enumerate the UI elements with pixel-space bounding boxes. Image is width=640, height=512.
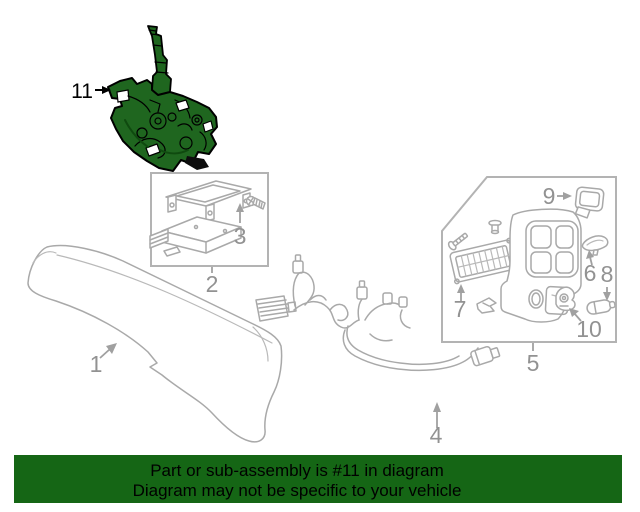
callout-8-label: 8 — [601, 261, 614, 287]
banner-line1: Part or sub-assembly is #11 in diagram — [150, 461, 444, 480]
banner-line2: Diagram may not be specific to your vehi… — [133, 481, 462, 500]
callout-8: 8 — [601, 261, 614, 301]
callout-4: 4 — [430, 402, 443, 448]
callout-4-label: 4 — [430, 422, 443, 448]
footer-banner: Part or sub-assembly is #11 in diagram D… — [14, 455, 622, 503]
part-module-screw — [247, 197, 266, 210]
callout-1-label: 1 — [90, 351, 103, 377]
callout-7: 7 — [454, 284, 467, 322]
callout-2: 2 — [206, 267, 219, 297]
callout-3-label: 3 — [234, 223, 247, 249]
callout-11-label: 11 — [71, 80, 93, 103]
part-shifter-assembly-highlighted — [108, 26, 217, 171]
callout-9-label: 9 — [543, 183, 556, 209]
callout-11: 11 — [71, 80, 111, 103]
callout-7-label: 7 — [454, 296, 467, 322]
callout-9: 9 — [543, 183, 572, 209]
part-outlet-bezel — [556, 287, 575, 310]
parts-diagram: 1 4 — [0, 0, 640, 512]
part-cover-cap — [582, 236, 607, 255]
callout-3: 3 — [234, 203, 247, 249]
callout-10-label: 10 — [576, 316, 602, 342]
callout-5-label: 5 — [527, 350, 540, 376]
part-rear-connector — [574, 187, 604, 220]
callout-5: 5 — [527, 343, 540, 376]
callout-1: 1 — [90, 343, 117, 377]
parts-diagram-page: 1 4 — [0, 0, 640, 512]
part-control-module-group — [150, 173, 268, 266]
part-console-side-panel — [28, 246, 282, 442]
callout-6-label: 6 — [584, 260, 597, 286]
part-outlet-socket — [586, 298, 616, 315]
callout-2-label: 2 — [206, 271, 219, 297]
part-push-pin — [489, 221, 501, 234]
